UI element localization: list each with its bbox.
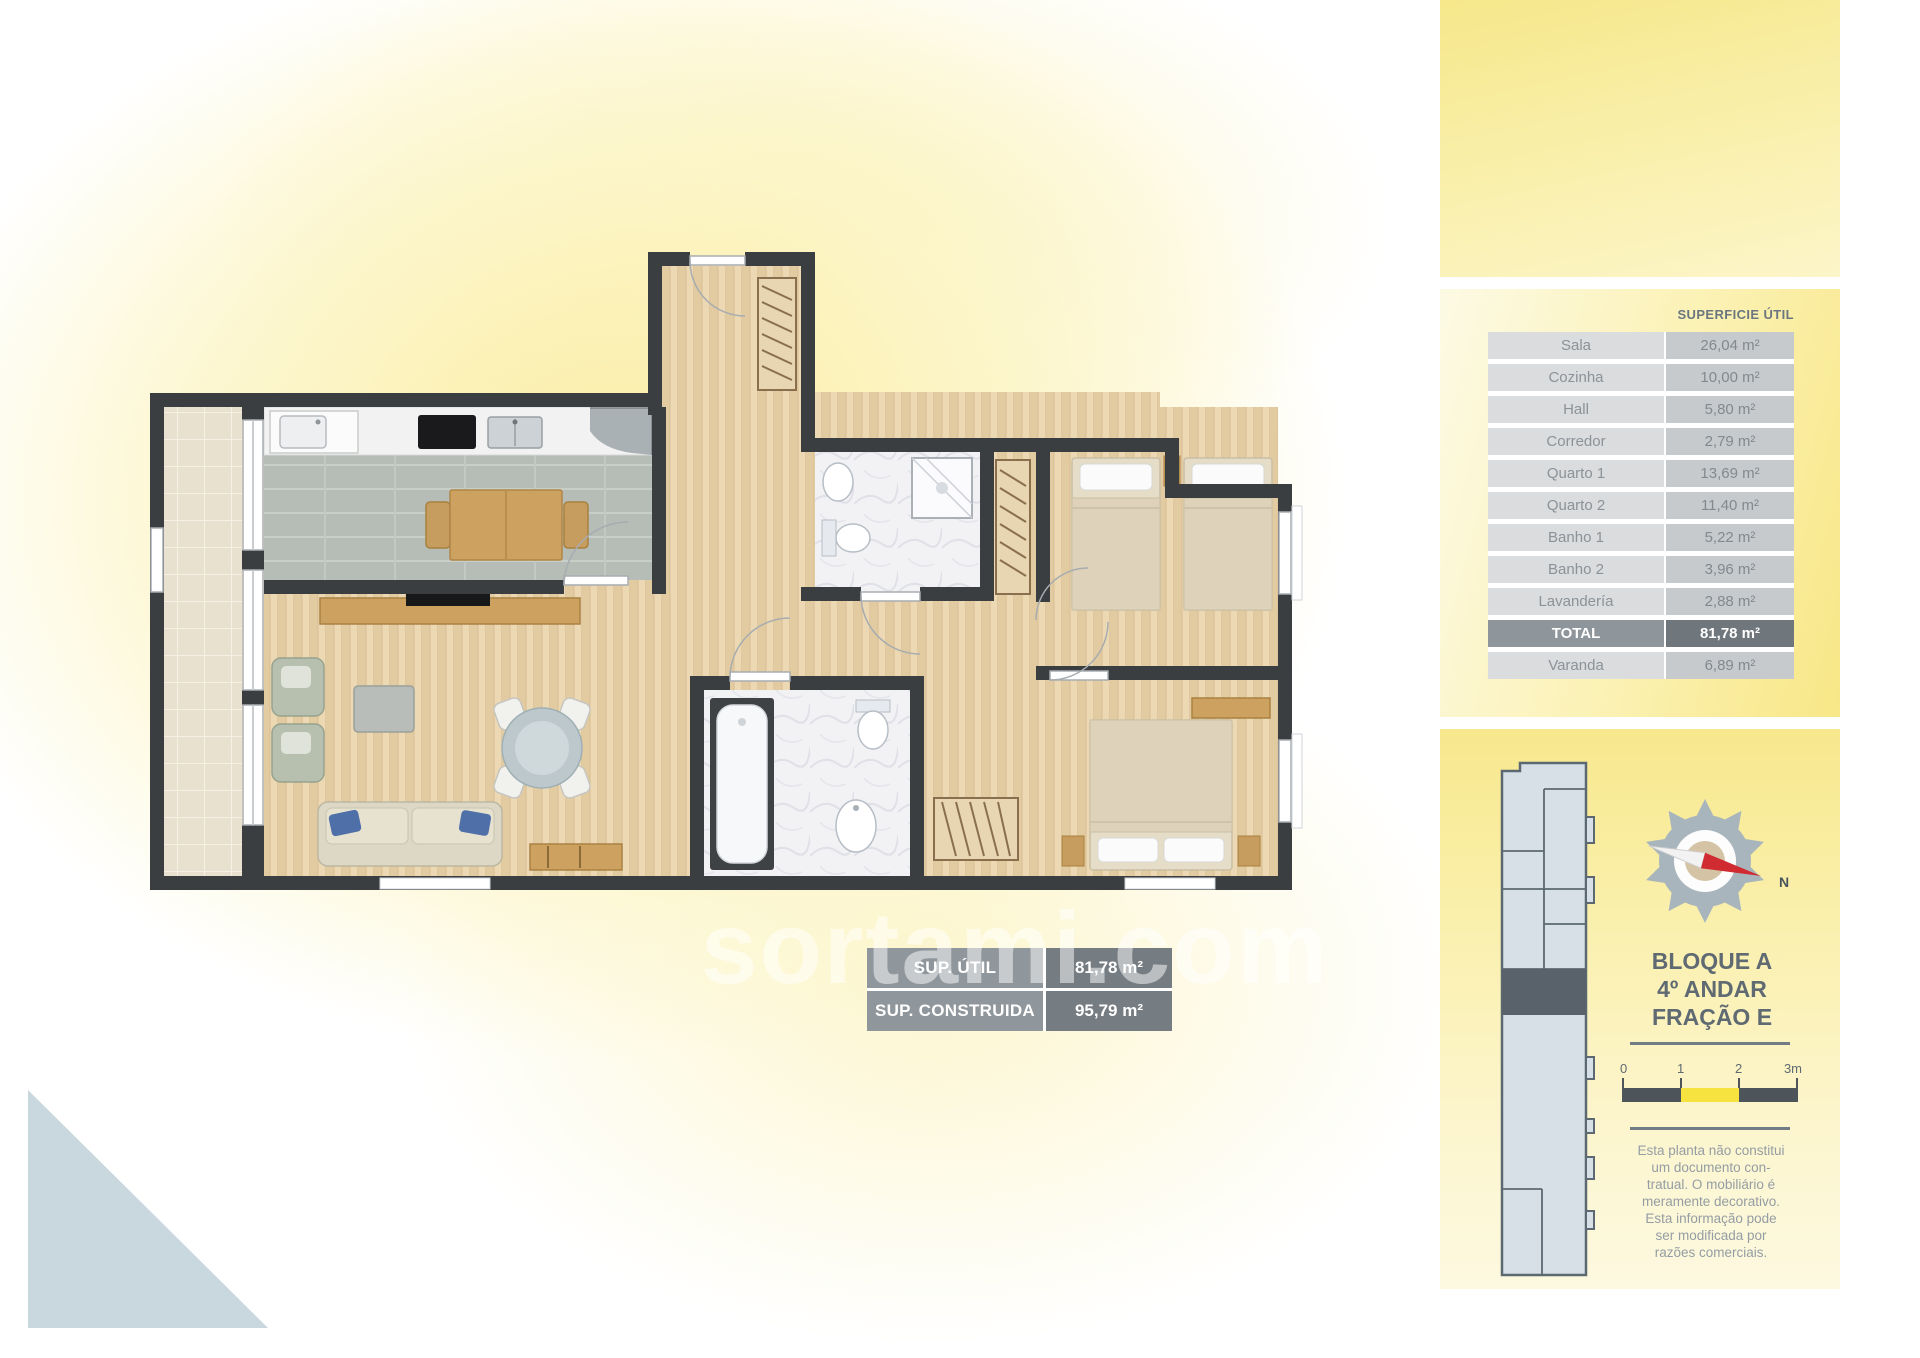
scale-label: 2 [1735,1061,1742,1076]
sofa-icon [318,802,502,866]
row-value: 26,04 m² [1666,332,1794,359]
row-label: Quarto 1 [1488,460,1664,487]
cooktop-icon [418,415,476,449]
scale-tick [1738,1078,1740,1088]
disclaimer-line: um documento con- [1612,1159,1810,1176]
tv-icon [406,594,490,606]
window-sill-icon [1125,878,1215,889]
double-bed-icon [1090,720,1232,870]
separator-line [1630,1127,1790,1130]
compass-icon: N [1633,787,1795,939]
table-row: Cozinha 10,00 m² [1488,364,1794,391]
scale-label: 0 [1620,1061,1627,1076]
row-value: 3,96 m² [1666,556,1794,583]
disclaimer-line: Esta planta não constitui [1612,1142,1810,1159]
panel-top-decoration [1440,0,1840,277]
table-row-total: TOTAL 81,78 m² [1488,620,1794,647]
row-label: TOTAL [1488,620,1664,647]
row-label: Sala [1488,332,1664,359]
row-label: Lavandería [1488,588,1664,615]
disclaimer-line: meramente decorativo. [1612,1193,1810,1210]
table-row: Quarto 1 13,69 m² [1488,460,1794,487]
scale-label: 3m [1784,1061,1802,1076]
row-label: Banho 2 [1488,556,1664,583]
surface-table-panel: SUPERFICIE ÚTIL Sala 26,04 m² Cozinha 10… [1440,289,1840,717]
row-value: 2,79 m² [1666,428,1794,455]
table-row: Lavandería 2,88 m² [1488,588,1794,615]
table-row: Banho 1 5,22 m² [1488,524,1794,551]
building-keyplan [1490,759,1618,1287]
entry-rack-icon [758,278,796,390]
table-row: Varanda 6,89 m² [1488,652,1794,679]
table-row: Corredor 2,79 m² [1488,428,1794,455]
watermark: sortami.com [655,890,1375,1007]
scale-strip [1622,1088,1798,1102]
table-header: SUPERFICIE ÚTIL [1440,289,1840,332]
row-label: Quarto 2 [1488,492,1664,519]
window-sill-icon [380,878,490,889]
laundry-rack-icon [934,798,1018,860]
toilet-icon [822,520,836,556]
scale-segment [1681,1088,1739,1102]
pillow-icon [1098,838,1158,862]
table-row: Quarto 2 11,40 m² [1488,492,1794,519]
disclaimer-line: Esta informação pode [1612,1210,1810,1227]
page: sortami.com SUP. ÚTIL 81,78 m² SUP. CONS… [0,0,1920,1358]
north-label: N [1779,874,1789,890]
dining-chair-icon [426,502,450,548]
unit-highlight [1502,969,1586,1015]
scale-bar: 0 1 2 3m [1622,1061,1798,1109]
bathroom1-door-icon [861,592,920,601]
bathroom2-door-icon [730,672,790,681]
shelf-icon [530,844,622,870]
scale-tick [1796,1078,1798,1088]
separator-line [1630,1042,1790,1045]
front-door-icon [690,256,745,265]
row-value: 11,40 m² [1666,492,1794,519]
floor-plan: sortami.com [150,250,1320,905]
disclaimer-line: razões comerciais. [1612,1244,1810,1261]
scale-label: 1 [1677,1061,1684,1076]
closet-rack-icon [996,460,1030,594]
window-sill-icon [1292,734,1302,828]
table-row: Banho 2 3,96 m² [1488,556,1794,583]
scale-tick [1680,1078,1682,1088]
unit-info-line: 4º ANDAR [1628,975,1796,1003]
unit-info-line: BLOQUE A [1628,947,1796,975]
row-label: Cozinha [1488,364,1664,391]
pillow-icon [1164,838,1224,862]
disclaimer-text: Esta planta não constitui um documento c… [1612,1142,1810,1261]
nightstand-icon [1062,836,1084,866]
floor-plan-svg [150,250,1320,905]
dresser-icon [1192,698,1270,718]
sink-icon [823,463,853,501]
round-table-icon [492,696,592,800]
row-value: 2,88 m² [1666,588,1794,615]
balcony-floor [164,407,242,876]
row-label: Varanda [1488,652,1664,679]
row-label: Banho 1 [1488,524,1664,551]
info-panel: N BLOQUE A 4º ANDAR FRAÇÃO E 0 1 2 3m [1440,729,1840,1289]
dining-chair-icon [564,502,588,548]
toilet-icon [856,700,890,712]
scale-segment [1622,1088,1681,1102]
scale-tick [1622,1078,1624,1088]
row-value: 5,22 m² [1666,524,1794,551]
disclaimer-line: tratual. O mobiliário é [1612,1176,1810,1193]
coffee-table-icon [354,686,414,732]
table-row: Sala 26,04 m² [1488,332,1794,359]
single-bed-icon [1072,458,1160,610]
row-value: 10,00 m² [1666,364,1794,391]
unit-info-line: FRAÇÃO E [1628,1003,1796,1031]
area-table: Sala 26,04 m² Cozinha 10,00 m² Hall 5,80… [1488,332,1794,679]
row-label: Hall [1488,396,1664,423]
window-icon [1279,740,1291,822]
kitchen-door-icon [564,576,628,585]
single-bed-icon [1184,458,1272,610]
row-value: 13,69 m² [1666,460,1794,487]
row-value: 6,89 m² [1666,652,1794,679]
disclaimer-line: ser modificada por [1612,1227,1810,1244]
nightstand-icon [1238,836,1260,866]
row-label: Corredor [1488,428,1664,455]
row-value: 81,78 m² [1666,620,1794,647]
window-icon [151,528,163,592]
window-icon [1279,512,1291,594]
row-value: 5,80 m² [1666,396,1794,423]
window-sill-icon [1292,506,1302,600]
table-row: Hall 5,80 m² [1488,396,1794,423]
scale-segment [1739,1088,1798,1102]
unit-info: BLOQUE A 4º ANDAR FRAÇÃO E [1628,947,1796,1031]
